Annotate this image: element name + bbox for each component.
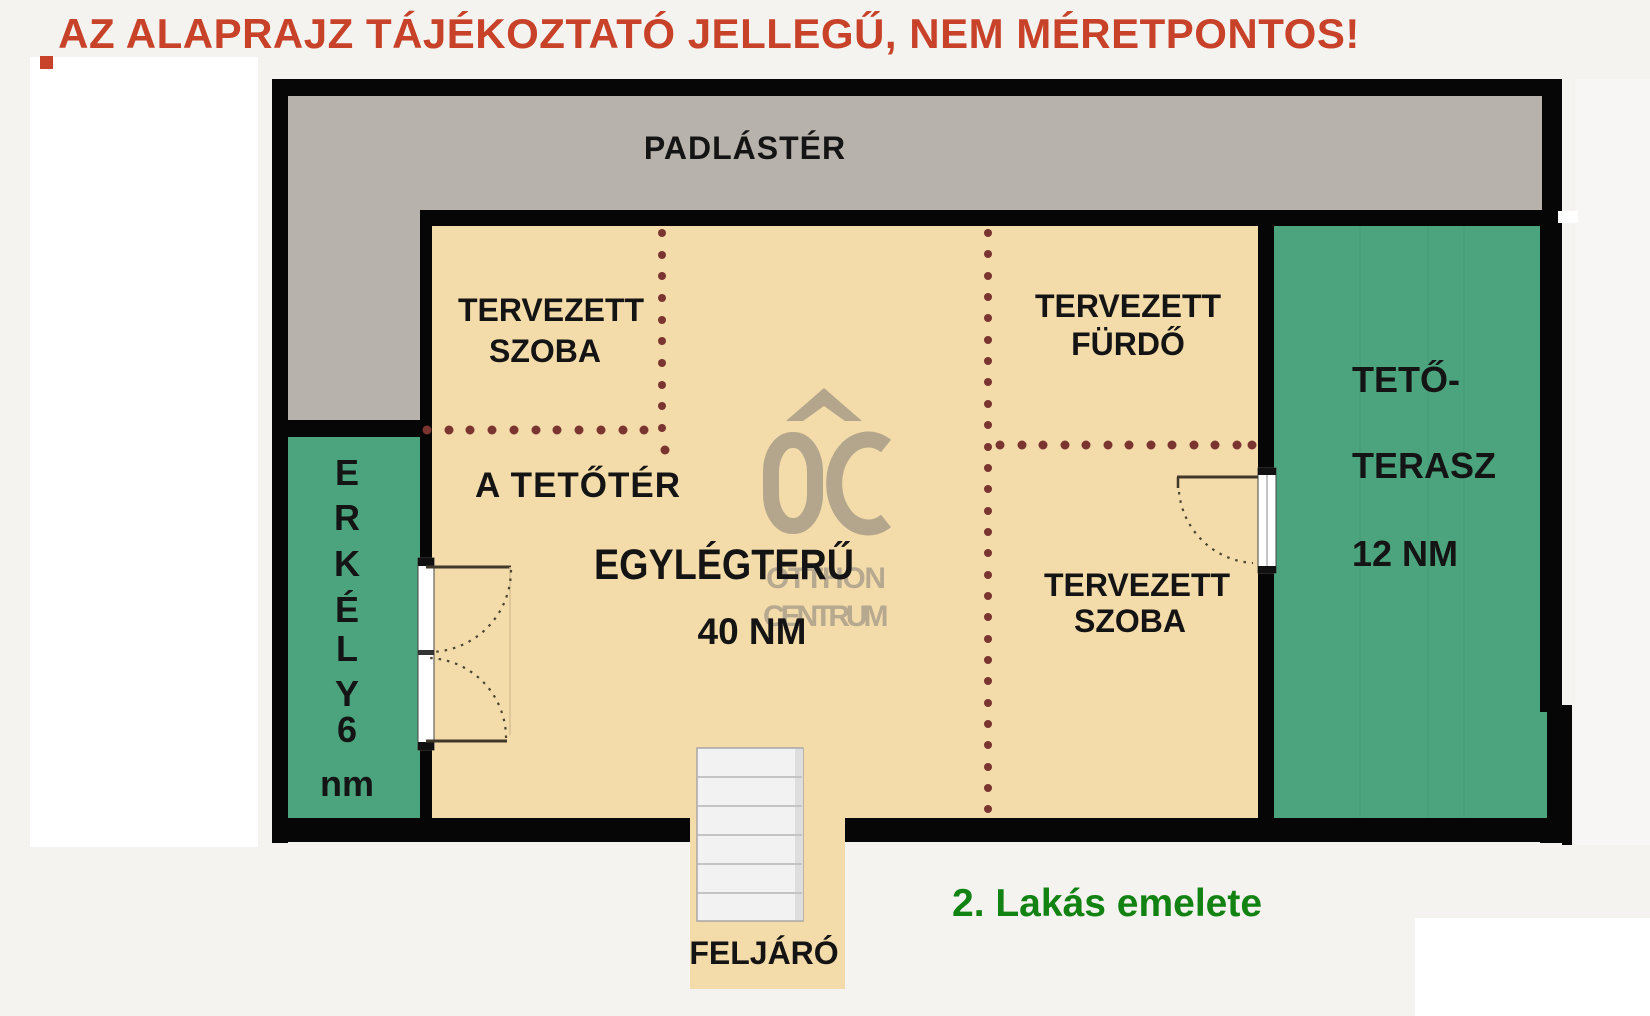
svg-text:40 NM: 40 NM (698, 611, 807, 652)
svg-text:FELJÁRÓ: FELJÁRÓ (689, 935, 838, 971)
svg-text:FÜRDŐ: FÜRDŐ (1071, 326, 1185, 362)
svg-text:SZOBA: SZOBA (489, 333, 601, 369)
svg-text:R: R (334, 497, 360, 538)
svg-text:PADLÁSTÉR: PADLÁSTÉR (644, 130, 846, 166)
svg-text:6: 6 (337, 709, 357, 750)
svg-text:K: K (334, 543, 360, 584)
svg-text:L: L (336, 628, 358, 669)
svg-text:E: E (335, 452, 359, 493)
svg-text:TERVEZETT: TERVEZETT (458, 292, 645, 328)
svg-text:2. Lakás emelete: 2. Lakás emelete (952, 882, 1262, 925)
svg-text:EGYLÉGTERŰ: EGYLÉGTERŰ (594, 541, 854, 589)
svg-text:TERVEZETT: TERVEZETT (1044, 567, 1231, 603)
svg-text:A TETŐTÉR: A TETŐTÉR (475, 465, 681, 505)
svg-text:TERASZ: TERASZ (1352, 445, 1496, 486)
svg-text:TERVEZETT: TERVEZETT (1035, 288, 1222, 324)
svg-text:nm: nm (320, 763, 374, 804)
svg-text:SZOBA: SZOBA (1074, 603, 1186, 639)
svg-text:É: É (335, 589, 359, 630)
svg-text:AZ ALAPRAJZ TÁJÉKOZTATÓ JELLEG: AZ ALAPRAJZ TÁJÉKOZTATÓ JELLEGŰ, NEM MÉR… (58, 9, 1360, 57)
svg-text:Y: Y (335, 673, 359, 714)
svg-text:12 NM: 12 NM (1352, 533, 1458, 574)
svg-text:TETŐ-: TETŐ- (1352, 358, 1460, 400)
